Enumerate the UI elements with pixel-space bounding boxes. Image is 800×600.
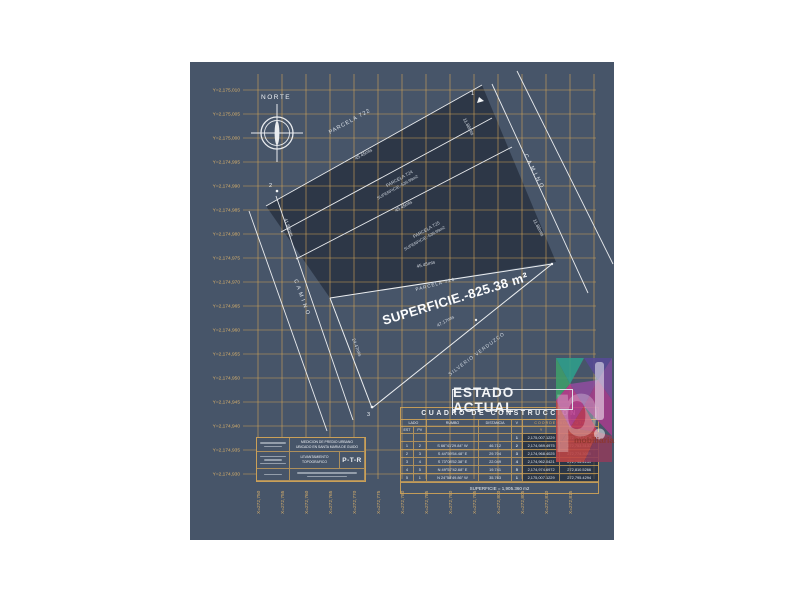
cell-rumbo: S 44°59'54.48" E	[427, 450, 479, 458]
title-block-cell	[257, 452, 290, 469]
cell-x: 272,795.4294	[560, 474, 598, 482]
cell-distancia: 29.704	[479, 450, 512, 458]
col-lado: LADO	[401, 420, 427, 427]
col-pv: PV	[414, 427, 427, 434]
cell-pv: 1	[414, 474, 427, 482]
title-block-cell	[290, 469, 365, 481]
y-axis-label: Y=2,174,930	[213, 472, 241, 478]
y-axis-label: Y=2,175,010	[213, 88, 241, 94]
cell-est	[401, 434, 414, 442]
cell-est: 5	[401, 474, 414, 482]
col-est: EST	[401, 427, 414, 434]
x-axis-label: X=272,750	[256, 490, 262, 514]
x-axis-label: X=272,775	[376, 490, 382, 514]
cell-v: 5	[512, 466, 523, 474]
y-axis-label: Y=2,174,975	[213, 256, 241, 262]
x-axis-label: X=272,765	[328, 490, 334, 514]
plan-drawing: Y=2,175,010Y=2,175,005Y=2,175,000Y=2,174…	[0, 0, 800, 600]
watermark-brand-text: mobiliaria	[574, 435, 614, 445]
work-type: LEVANTAMIENTO TOPOGRAFICO	[290, 452, 340, 469]
vertex-3-label: 3	[367, 412, 370, 418]
cell-distancia: 35.763	[479, 474, 512, 482]
cell-pv: 4	[414, 458, 427, 466]
cell-v: 4	[512, 458, 523, 466]
col-distancia: DISTANCIA	[479, 420, 512, 427]
y-axis-label: Y=2,174,990	[213, 184, 241, 190]
y-axis-label: Y=2,174,940	[213, 424, 241, 430]
cell-rumbo: S 66°41'29.84" W	[427, 442, 479, 450]
cell-distancia: 46.712	[479, 442, 512, 450]
y-axis-label: Y=2,174,935	[213, 448, 241, 454]
col-spacer	[427, 427, 479, 434]
cell-pv	[414, 434, 427, 442]
y-axis-label: Y=2,175,005	[213, 112, 241, 118]
col-spacer	[479, 427, 512, 434]
cell-pv: 3	[414, 450, 427, 458]
y-axis-label: Y=2,175,000	[213, 136, 241, 142]
north-label: NORTE	[261, 94, 291, 101]
y-axis-label: Y=2,174,955	[213, 352, 241, 358]
title-block-cell	[257, 469, 290, 481]
col-rumbo: RUMBO	[427, 420, 479, 427]
y-axis-label: Y=2,174,995	[213, 160, 241, 166]
cell-v: 3	[512, 450, 523, 458]
cell-est: 4	[401, 466, 414, 474]
project-description: MEDICION DE PREDIO URBANO UBICADO EN SAN…	[290, 438, 365, 452]
x-axis-label: X=272,755	[280, 490, 286, 514]
cell-distancia	[479, 434, 512, 442]
cell-rumbo: S 73°08'52.38" E	[427, 458, 479, 466]
title-block: MEDICION DE PREDIO URBANO UBICADO EN SAN…	[256, 437, 366, 482]
cell-est: 1	[401, 442, 414, 450]
y-axis-label: Y=2,174,985	[213, 208, 241, 214]
cell-pv: 2	[414, 442, 427, 450]
cell-v: 2	[512, 442, 523, 450]
cell-distancia: 22.049	[479, 458, 512, 466]
col-v: V	[512, 420, 523, 427]
y-axis-label: Y=2,174,980	[213, 232, 241, 238]
cell-v: 1	[512, 474, 523, 482]
y-axis-label: Y=2,174,970	[213, 280, 241, 286]
title-block-cell	[257, 438, 290, 452]
table-superficie-total: SUPERFICIE = 1,905.360 m2	[400, 483, 599, 494]
cell-distancia: 19.741	[479, 466, 512, 474]
y-axis-label: Y=2,174,950	[213, 376, 241, 382]
vertex-1-label: 1	[471, 91, 474, 97]
cell-est: 3	[401, 458, 414, 466]
surveyor-logo: P-T-R	[340, 452, 365, 469]
cell-rumbo: N 49°57'42.68" E	[427, 466, 479, 474]
y-axis-label: Y=2,174,960	[213, 328, 241, 334]
x-axis-label: X=272,770	[352, 490, 358, 514]
status-title: ESTADO ACTUAL	[452, 389, 573, 410]
x-axis-label: X=272,760	[304, 490, 310, 514]
y-axis-label: Y=2,174,945	[213, 400, 241, 406]
cell-pv: 5	[414, 466, 427, 474]
vertex-2-label: 2	[269, 183, 272, 189]
y-axis-label: Y=2,174,965	[213, 304, 241, 310]
cell-y: 2,175,007.1229	[523, 474, 561, 482]
cell-rumbo	[427, 434, 479, 442]
table-row: 51N 24°58'49.86" W35.76312,175,007.12292…	[401, 474, 598, 482]
survey-plan-viewer: Y=2,175,010Y=2,175,005Y=2,175,000Y=2,174…	[0, 0, 800, 600]
cell-rumbo: N 24°58'49.86" W	[427, 474, 479, 482]
cell-est: 2	[401, 450, 414, 458]
cell-v: 1	[512, 434, 523, 442]
col-spacer	[512, 427, 523, 434]
